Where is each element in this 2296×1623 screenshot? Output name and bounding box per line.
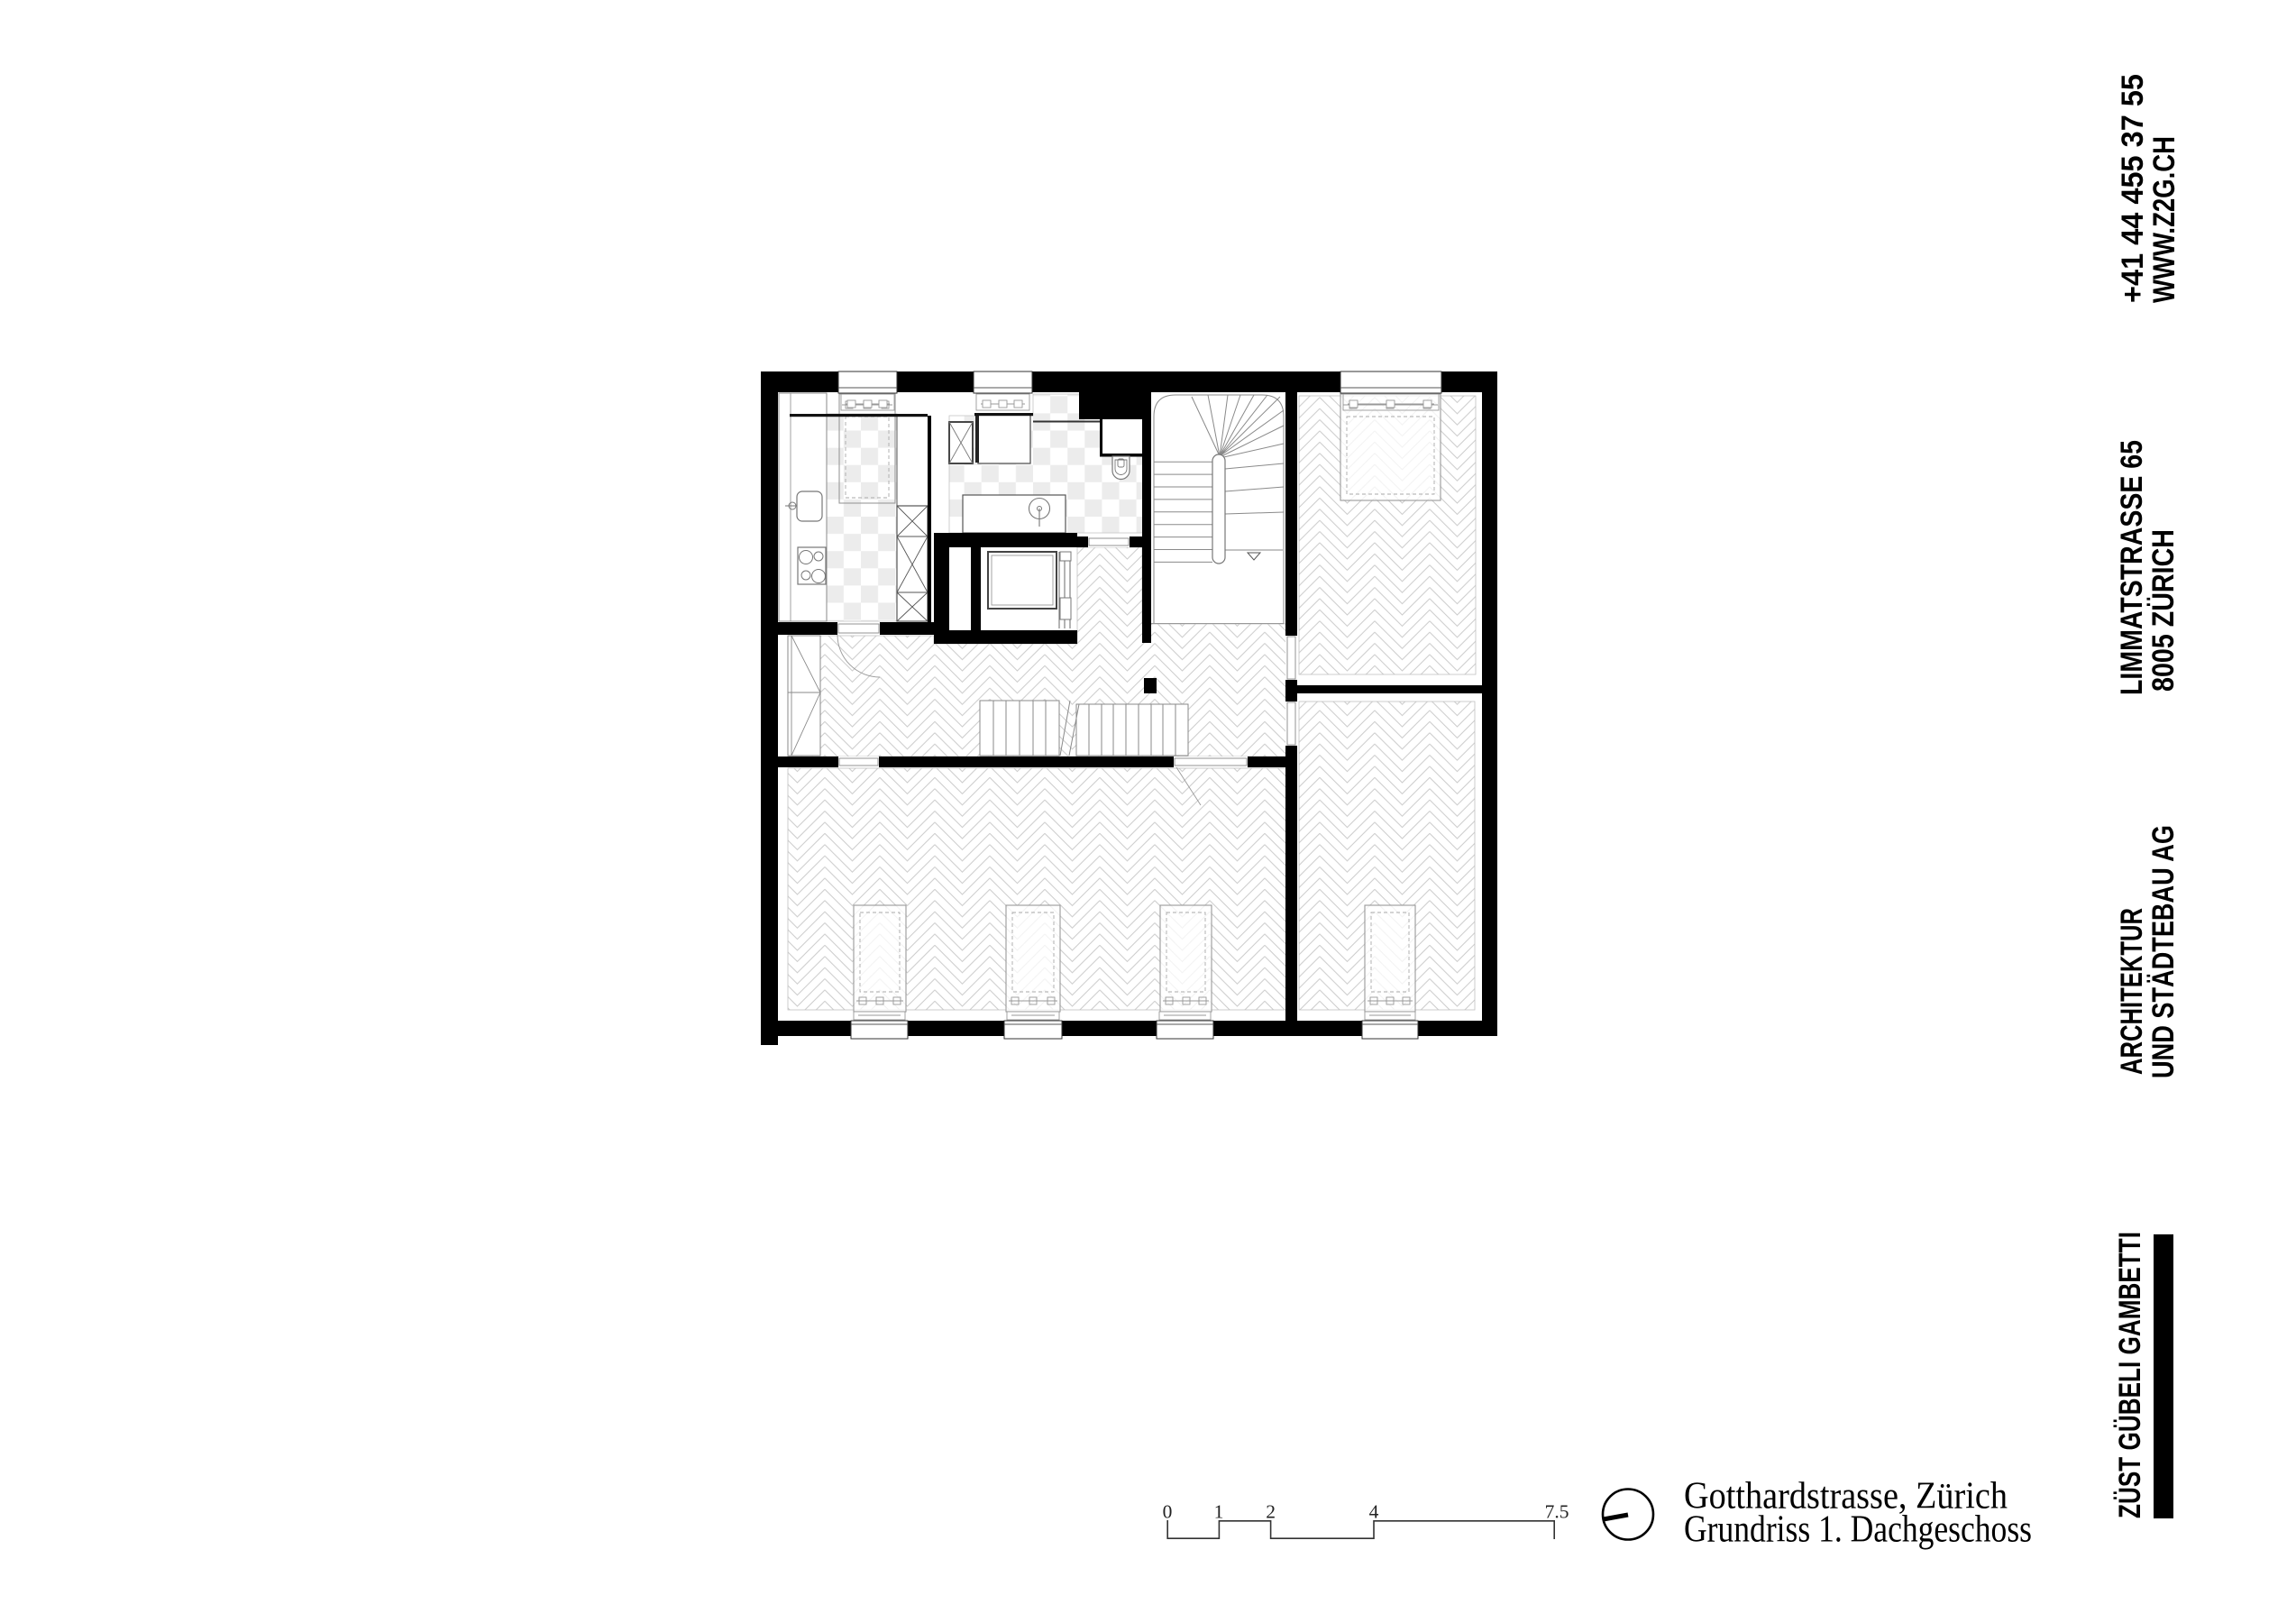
svg-text:UND STÄDTEBAU AG: UND STÄDTEBAU AG xyxy=(2146,825,2181,1078)
svg-text:ARCHITEKTUR: ARCHITEKTUR xyxy=(2115,908,2149,1075)
svg-text:1: 1 xyxy=(1214,1501,1224,1523)
svg-text:+41 44 455 37 55: +41 44 455 37 55 xyxy=(2116,74,2150,303)
svg-text:WWW.Z2G.CH: WWW.Z2G.CH xyxy=(2147,136,2182,303)
svg-text:LIMMATSTRASSE 65: LIMMATSTRASSE 65 xyxy=(2115,440,2149,695)
svg-text:ZÜST GÜBELI GAMBETTI: ZÜST GÜBELI GAMBETTI xyxy=(2113,1232,2147,1518)
svg-text:2: 2 xyxy=(1266,1501,1276,1523)
svg-text:7.5: 7.5 xyxy=(1545,1501,1569,1523)
svg-text:Grundriss 1. Dachgeschoss: Grundriss 1. Dachgeschoss xyxy=(1684,1508,2032,1550)
svg-text:8005 ZÜRICH: 8005 ZÜRICH xyxy=(2146,529,2181,692)
svg-text:0: 0 xyxy=(1163,1501,1173,1523)
svg-text:4: 4 xyxy=(1369,1501,1379,1523)
